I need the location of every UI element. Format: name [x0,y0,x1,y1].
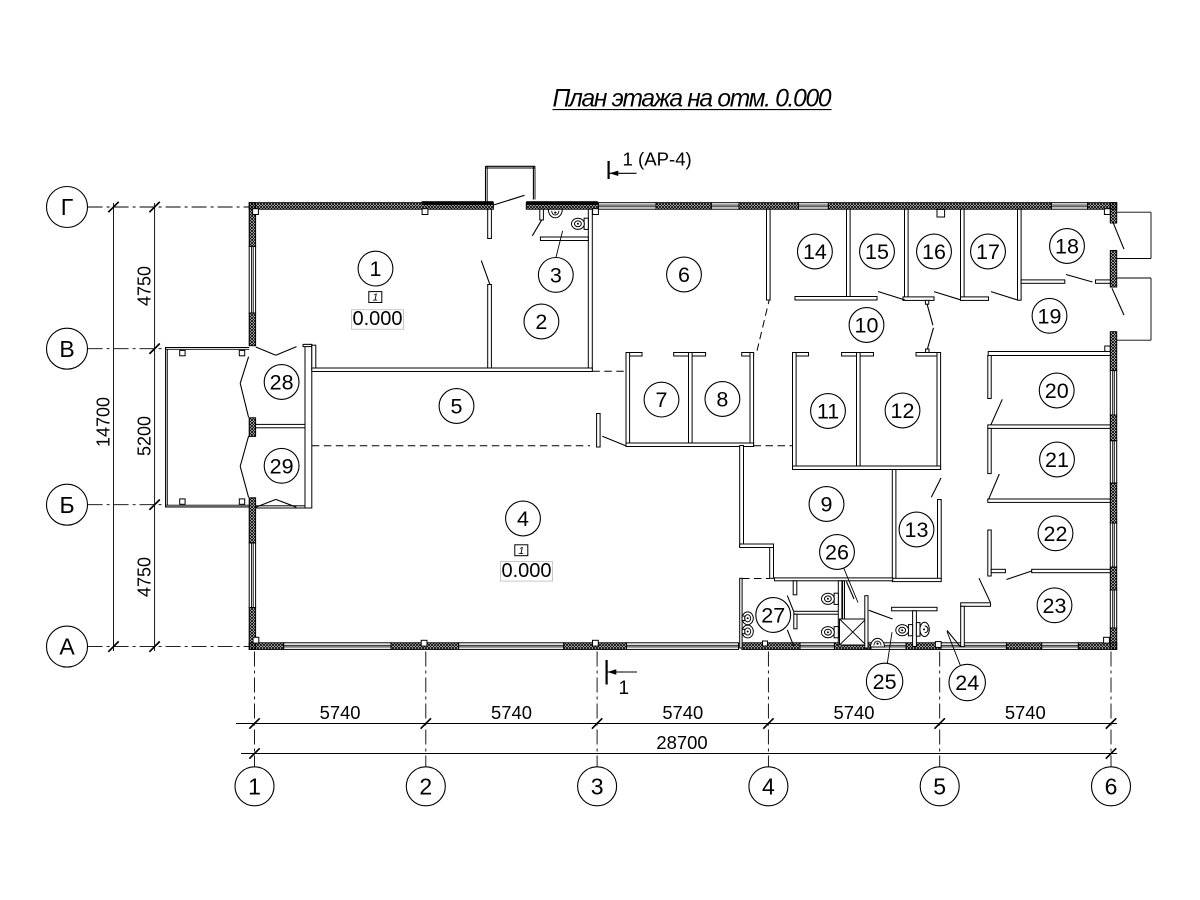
svg-text:2: 2 [535,310,547,334]
svg-text:26: 26 [825,541,849,565]
svg-text:5740: 5740 [662,702,703,723]
svg-text:27: 27 [761,604,785,628]
svg-text:Б: Б [59,492,74,518]
svg-text:9: 9 [821,493,833,517]
svg-text:1: 1 [518,545,524,557]
svg-text:1: 1 [248,773,261,799]
svg-text:5740: 5740 [1005,702,1046,723]
svg-text:18: 18 [1055,235,1079,259]
svg-text:5740: 5740 [491,702,532,723]
svg-text:17: 17 [976,240,1000,264]
svg-text:2: 2 [419,773,432,799]
svg-text:1: 1 [372,292,378,304]
svg-text:21: 21 [1045,448,1069,472]
svg-text:5: 5 [933,773,946,799]
svg-text:14700: 14700 [94,397,114,447]
svg-text:6: 6 [678,263,690,287]
svg-text:5: 5 [451,395,463,419]
svg-text:10: 10 [855,314,879,338]
svg-text:8: 8 [716,388,728,412]
svg-text:24: 24 [955,671,979,695]
svg-text:25: 25 [873,670,897,694]
svg-text:11: 11 [817,400,839,424]
svg-text:4750: 4750 [134,557,154,597]
svg-text:Г: Г [61,194,74,220]
svg-text:0.000: 0.000 [352,308,402,330]
svg-text:16: 16 [922,240,946,264]
svg-text:14: 14 [803,240,827,264]
svg-text:22: 22 [1044,522,1068,546]
svg-text:13: 13 [905,518,929,542]
svg-text:4: 4 [762,773,775,799]
svg-text:6: 6 [1105,773,1118,799]
svg-text:3: 3 [550,263,562,287]
svg-text:В: В [59,336,74,362]
svg-text:4750: 4750 [134,266,154,306]
svg-text:20: 20 [1045,379,1069,403]
svg-text:5200: 5200 [134,416,154,456]
svg-text:1: 1 [619,678,630,699]
svg-text:5740: 5740 [834,702,875,723]
svg-text:28700: 28700 [656,732,707,753]
svg-text:23: 23 [1043,594,1067,618]
svg-text:28: 28 [270,371,294,395]
svg-text:А: А [59,634,75,660]
svg-text:15: 15 [865,240,889,264]
svg-text:3: 3 [591,773,604,799]
svg-text:29: 29 [270,454,294,478]
svg-text:7: 7 [656,388,668,412]
svg-text:4: 4 [517,507,529,531]
svg-text:0.000: 0.000 [501,560,551,582]
svg-text:12: 12 [891,399,915,423]
svg-text:План этажа на отм. 0.000: План этажа на отм. 0.000 [553,86,832,113]
svg-text:5740: 5740 [320,702,361,723]
svg-text:1: 1 [370,257,382,281]
svg-text:19: 19 [1038,304,1062,328]
svg-text:1 (АР-4): 1 (АР-4) [623,149,692,170]
